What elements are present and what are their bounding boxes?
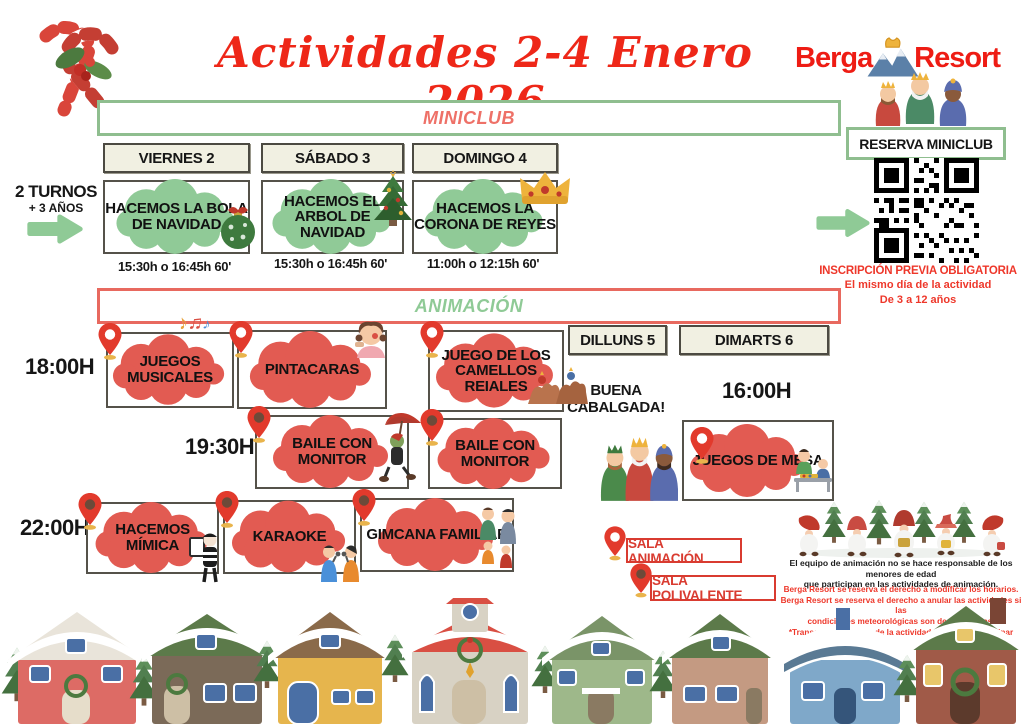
village-brick-house — [906, 598, 1024, 724]
village-red-house-1 — [8, 612, 146, 724]
singing-kids-icon — [317, 542, 365, 584]
qr-code — [874, 158, 979, 263]
activity-juegos-mesa: JUEGOS DE MESA — [682, 420, 834, 501]
inscripcion-line3: De 3 a 12 años — [812, 294, 1024, 306]
day-label: SÁBADO 3 — [295, 150, 370, 167]
time-note-sabado: 15:30h o 16:45h 60' — [261, 256, 400, 271]
miniclub-section-bar: MINICLUB — [97, 100, 841, 136]
day-header-viernes: VIERNES 2 — [103, 143, 250, 173]
turnos-line1: 2 TURNOS — [8, 182, 104, 202]
turnos-note: 2 TURNOS + 3 AÑOS — [8, 182, 104, 215]
turnos-line2: + 3 AÑOS — [8, 201, 104, 215]
christmas-ornament-icon — [218, 204, 258, 252]
day-header-dimarts: DIMARTS 6 — [679, 325, 829, 355]
activity-gimcana-familiar: GIMCANA FAMILIAR — [360, 498, 514, 572]
time-label-1600: 16:00H — [722, 378, 791, 404]
village-brown-house — [142, 614, 272, 724]
day-header-dilluns: DILLUNS 5 — [568, 325, 667, 355]
animacion-header: ANIMACIÓN — [415, 296, 524, 317]
day-label: VIERNES 2 — [139, 150, 215, 167]
village-yellow-house — [268, 612, 392, 724]
activity-camellos-reiales: JUEGO DE LOS CAMELLOS REIALES — [428, 330, 564, 412]
day-label: DILLUNS 5 — [580, 332, 655, 349]
three-kings-standing-icon — [598, 424, 678, 504]
inscripcion-note: INSCRIPCIÓN PREVIA OBLIGATORIA El mismo … — [812, 265, 1024, 306]
village-blue-house — [778, 608, 912, 724]
activity-baile-monitor-1: BAILE CON MONITOR — [255, 415, 409, 489]
activity-baile-monitor-2: BAILE CON MONITOR — [428, 418, 562, 489]
family-icon — [476, 506, 522, 568]
village-green-house — [542, 616, 662, 724]
green-arrow-left-icon — [26, 214, 84, 244]
activity-karaoke: KARAOKE — [223, 500, 356, 574]
time-label-1800: 18:00H — [25, 354, 94, 380]
time-label-1930: 19:30H — [185, 434, 254, 460]
day-label: DOMINGO 4 — [443, 150, 526, 167]
time-note-viernes: 15:30h o 16:45h 60' — [103, 259, 246, 274]
reserva-miniclub-box: RESERVA MINICLUB — [846, 127, 1006, 160]
kings-on-camels-icon — [526, 366, 590, 408]
poster-canvas: { "title": "Actividades 2-4 Enero 2026",… — [0, 0, 1024, 724]
legend-sala-animacion: SALA ANIMACIÓN — [626, 538, 742, 563]
green-arrow-qr-icon — [816, 208, 870, 238]
gnomes-icon — [793, 498, 1009, 558]
kids-board-game-icon — [792, 446, 834, 494]
face-painting-girl-icon — [351, 318, 391, 360]
christmas-tree-icon — [371, 170, 415, 226]
mime-icon — [188, 530, 222, 586]
inscripcion-line1: INSCRIPCIÓN PREVIA OBLIGATORIA — [812, 265, 1024, 277]
reserva-miniclub-label: RESERVA MINICLUB — [859, 136, 992, 152]
activity-juegos-musicales: JUEGOS MUSICALES ♪♫♪ — [106, 332, 234, 408]
brand-name-left: Berga — [795, 42, 872, 75]
cricket-with-umbrella-icon — [377, 409, 425, 485]
time-note-domingo: 11:00h o 12:15h 60' — [412, 256, 554, 271]
activity-bola-navidad: HACEMOS LA BOLA DE NAVIDAD — [103, 180, 250, 254]
kings-crown-icon — [514, 166, 576, 208]
village-church — [402, 598, 538, 724]
music-notes-icon: ♪♫♪ — [178, 312, 211, 335]
day-label: DIMARTS 6 — [715, 332, 793, 349]
activity-arbol-navidad: HACEMOS EL ARBOL DE NAVIDAD — [261, 180, 404, 254]
activity-hacemos-mimica: HACEMOS MÍMICA — [86, 502, 219, 574]
inscripcion-line2: El mismo día de la actividad — [812, 279, 1024, 291]
sala-animacion-pin-icon — [603, 525, 627, 561]
brand-name-right: Resort — [914, 42, 1000, 75]
village-pink-house — [662, 614, 778, 724]
three-kings-top-icon — [868, 72, 972, 128]
activity-pintacaras: PINTACARAS — [237, 330, 387, 409]
christmas-village-illustration — [0, 598, 1024, 724]
day-header-sabado: SÁBADO 3 — [261, 143, 404, 173]
miniclub-header: MINICLUB — [423, 108, 515, 129]
activity-corona-reyes: HACEMOS LA CORONA DE REYES — [412, 180, 558, 254]
